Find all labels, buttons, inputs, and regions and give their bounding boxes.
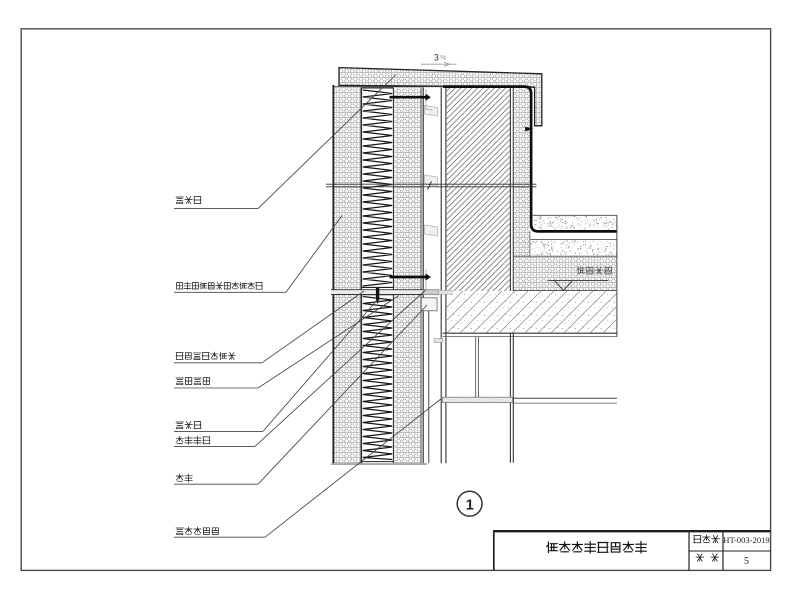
svg-text:1: 1 [466,497,474,513]
svg-text:5: 5 [744,556,749,567]
svg-text:%: % [440,55,446,62]
svg-text:HT-003-2019: HT-003-2019 [723,535,769,545]
svg-text:3: 3 [434,53,439,63]
